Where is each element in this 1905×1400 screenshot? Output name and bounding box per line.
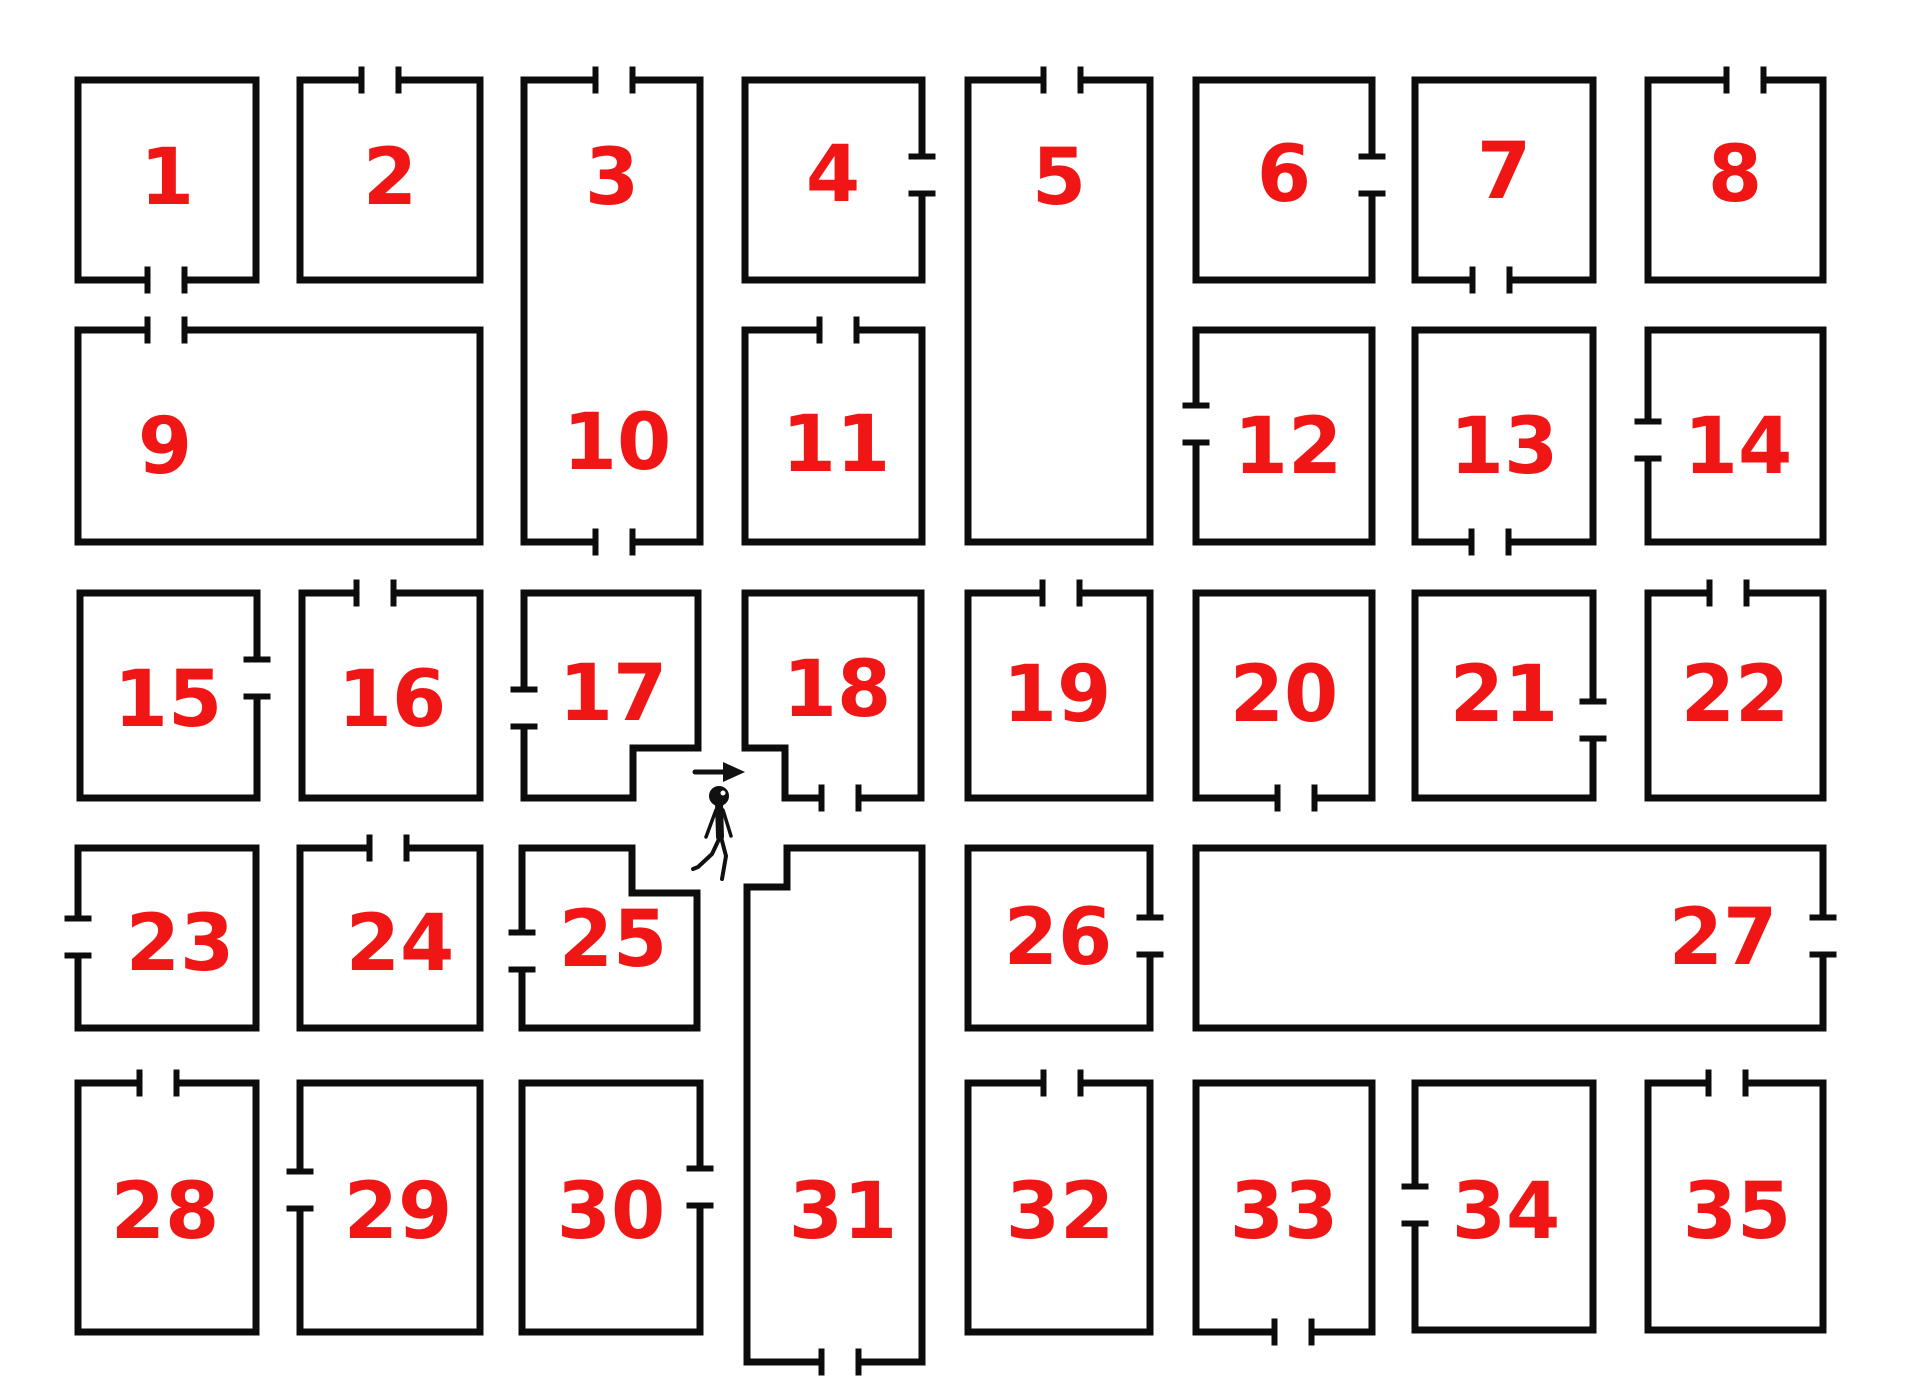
figure-torso [719,803,720,837]
room-number-10: 10 [563,398,672,488]
room-number-32: 32 [1006,1167,1115,1257]
floor-plan-canvas: 1231045678911121314151617181920212223242… [0,0,1905,1400]
room-number-15: 15 [114,655,223,745]
room-number-29: 29 [344,1167,453,1257]
room-number-34: 34 [1452,1167,1561,1257]
room-number-26: 26 [1004,893,1113,983]
room-number-23: 23 [126,899,235,989]
room-number-4: 4 [806,130,860,220]
room-number-25: 25 [559,895,668,985]
room-number-27: 27 [1669,893,1778,983]
room-number-11: 11 [782,400,891,490]
room-number-24: 24 [346,899,455,989]
room-number-31: 31 [789,1167,898,1257]
room-number-22: 22 [1681,650,1790,740]
room-number-1: 1 [140,133,194,223]
room-number-8: 8 [1708,130,1762,220]
room-number-2: 2 [363,133,417,223]
room-number-13: 13 [1450,402,1559,492]
room-number-33: 33 [1230,1167,1339,1257]
room-number-9: 9 [138,402,192,492]
room-number-6: 6 [1257,130,1311,220]
room-number-19: 19 [1003,650,1112,740]
room-number-3: 3 [585,133,639,223]
background [0,0,1905,1400]
room-number-30: 30 [557,1167,666,1257]
room-number-16: 16 [338,655,447,745]
figure-face-dot [721,791,726,796]
room-number-5: 5 [1032,133,1086,223]
room-number-28: 28 [111,1167,220,1257]
room-number-17: 17 [559,649,668,739]
room-number-21: 21 [1450,650,1559,740]
room-number-20: 20 [1230,650,1339,740]
room-number-7: 7 [1477,127,1531,217]
floor-plan: 1231045678911121314151617181920212223242… [0,0,1905,1400]
room-number-18: 18 [783,645,892,735]
room-number-14: 14 [1684,402,1793,492]
room-number-12: 12 [1234,402,1343,492]
room-number-35: 35 [1683,1167,1792,1257]
